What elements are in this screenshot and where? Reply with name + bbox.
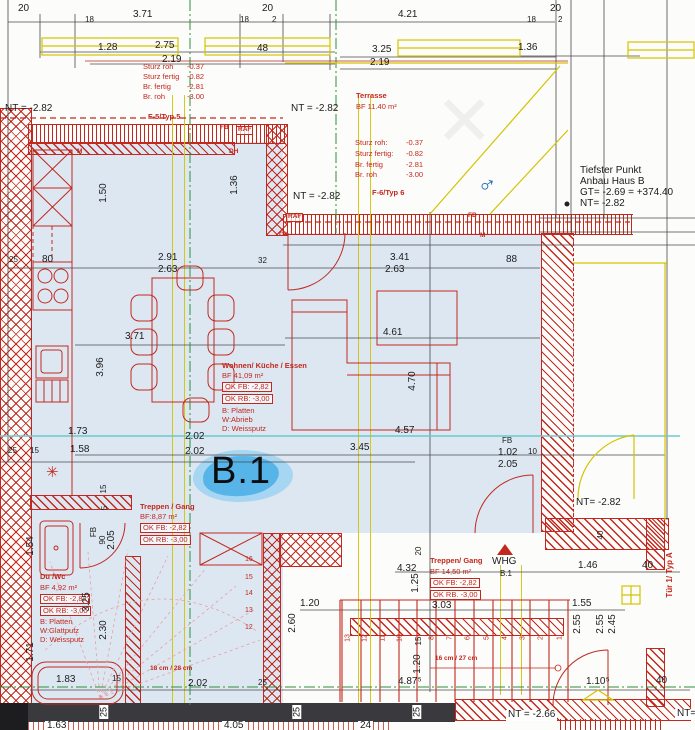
spec1-l1: Sturz roh <box>143 63 173 71</box>
dim-5-v: 5 <box>101 506 109 510</box>
dim-146: 1.46 <box>578 561 597 572</box>
tag-dh: DH <box>229 149 238 156</box>
tag-whg-unit: B.1 <box>500 570 512 578</box>
dim-260-v: 2.60 <box>288 613 299 632</box>
tag-m-2: M <box>77 149 82 156</box>
dim-20-right: 20 <box>550 4 561 15</box>
room-treppen1-okfb: OK FB: -2,82 <box>140 523 190 533</box>
dim-80: 80 <box>42 255 53 266</box>
dim-88: 88 <box>506 255 517 266</box>
room-wohnen-d: D: Weissputz <box>222 425 266 433</box>
unit-marker: B.1 <box>211 452 271 492</box>
dim-263a: 2.63 <box>158 265 177 276</box>
dim-325: 3.25 <box>372 45 391 56</box>
tag-fb-3: FB <box>502 437 512 445</box>
dim-230-v: 2.30 <box>99 620 110 639</box>
spec2-v1: -0.37 <box>406 139 423 147</box>
window-type-6: F-6/Typ 6 <box>372 189 404 197</box>
dim-158: 1.58 <box>70 445 89 456</box>
room-wohnen-b: B: Platten <box>222 407 255 415</box>
step-12: 12 <box>361 634 368 642</box>
stair-note-left: 18 cm / 28 cm <box>150 666 192 673</box>
tag-m-1: M <box>480 233 485 240</box>
dim-255-v2: 2.55 <box>596 614 607 633</box>
dim-219b: 2.19 <box>370 58 389 69</box>
dim-32: 32 <box>258 257 267 265</box>
dim-10: 10 <box>528 448 537 456</box>
step-11: 11 <box>379 634 386 641</box>
window-type-5: F-5/Typ 5 <box>148 113 180 121</box>
room-duwc-area: BF 4,92 m² <box>40 584 77 592</box>
dim-202c: 2.02 <box>188 679 207 690</box>
room-treppen2: Treppen/ Gang <box>430 557 483 565</box>
dim-202a: 2.02 <box>185 432 204 443</box>
dim-18: 18 <box>85 16 94 24</box>
level-nt-1: NT = -2.82 <box>5 104 52 115</box>
room-duwc-d: D: Weissputz <box>40 636 84 644</box>
dim-202b: 2.02 <box>185 447 204 458</box>
door-type-a: Tür 1/ Typ A <box>666 552 674 597</box>
spec1-v1: -0.37 <box>187 63 204 71</box>
note-tiefster-3: GT= -2.69 = +374.40 <box>580 188 673 199</box>
note-tiefster-4: NT= -2.82 <box>580 199 625 210</box>
spec1-l3: Br. fertig <box>143 83 171 91</box>
band-25-1: 25 <box>99 705 108 719</box>
dim-155: 1.55 <box>572 599 591 610</box>
dim-371-top: 3.71 <box>133 10 152 21</box>
tag-fb-1: FB <box>220 125 229 132</box>
room-wohnen-area: BF 41,09 m² <box>222 372 263 380</box>
dim-275: 2.75 <box>155 41 174 52</box>
tag-whg: WHG <box>492 557 516 568</box>
tag-ok: OK <box>279 232 289 239</box>
dim-15b: 15 <box>112 675 121 683</box>
band-25-2: 25 <box>292 705 301 719</box>
dim-345: 3.45 <box>350 443 369 454</box>
level-nt-4: NT= -2.82 <box>576 498 621 509</box>
room-duwc-w: W:Glattputz <box>40 627 79 635</box>
dim-20-topleft: 20 <box>18 4 29 15</box>
level-nt-5: NT = -2.66 <box>506 710 557 721</box>
dim-303: 3.03 <box>432 601 451 612</box>
room-terrasse-area: BF 11.40 m² <box>356 103 397 111</box>
spec2-l2: Sturz fertig: <box>355 150 393 158</box>
dim-470-v: 4.70 <box>408 371 419 390</box>
room-treppen1-okrb: OK RB: -3,00 <box>140 535 191 545</box>
step-15l: 15 <box>245 574 253 581</box>
dim-24-clip: 24 <box>358 721 373 730</box>
dim-325-v: 3.25 <box>82 592 93 611</box>
dim-125-v: 1.25 <box>411 573 422 592</box>
dim-205: 2.05 <box>498 460 517 471</box>
dim-25a: 25 <box>9 256 18 264</box>
step-13l: 13 <box>245 607 253 614</box>
dim-25b: 25 <box>8 447 17 455</box>
level-nt-3: NT = -2.82 <box>293 192 340 203</box>
spec2-v2: -0.82 <box>406 150 423 158</box>
dim-371-mid: 3.71 <box>125 332 144 343</box>
spec2-v4: -3.00 <box>406 171 423 179</box>
room-duwc: Du /Wc <box>40 573 65 581</box>
dim-48: 48 <box>257 44 268 55</box>
dim-405-clip: 4.05 <box>222 721 245 730</box>
dim-25c: 25 <box>258 679 267 687</box>
step-4: 4 <box>501 636 508 640</box>
room-terrasse: Terrasse <box>356 92 387 100</box>
mark-asterisk: ✳ <box>46 465 59 481</box>
step-5: 5 <box>483 636 490 640</box>
dim-396-v: 3.96 <box>96 357 107 376</box>
dim-15-v2: 15 <box>415 637 423 646</box>
dim-291: 2.91 <box>158 253 177 264</box>
dim-263b: 2.63 <box>385 265 404 276</box>
step-6: 6 <box>464 636 471 640</box>
tag-raf-2: RAF <box>286 213 303 222</box>
spec2-l3: Br. fertig <box>355 161 383 169</box>
dim-15a: 15 <box>30 447 39 455</box>
dim-120a: 1.20 <box>300 599 319 610</box>
note-tiefster-1: Tiefster Punkt <box>580 166 641 177</box>
dim-40a: 40 <box>656 676 667 687</box>
room-wohnen-w: W:Abrieb <box>222 416 253 424</box>
stair-note-right: 16 cm / 27 cm <box>435 656 477 663</box>
dim-163-clip: 1.63 <box>45 721 68 730</box>
step-1: 1 <box>556 636 563 640</box>
dim-20-v: 20 <box>415 547 423 556</box>
dim-457: 4.57 <box>395 426 414 437</box>
dim-4875: 4.87⁵ <box>398 677 422 688</box>
room-treppen1: Treppen / Gang <box>140 503 195 511</box>
level-nt-6: NT= <box>675 709 695 720</box>
dim-173: 1.73 <box>68 427 87 438</box>
dim-341: 3.41 <box>390 253 409 264</box>
step-7: 7 <box>446 636 453 640</box>
room-wohnen-okrb: OK RB: -3,00 <box>222 394 273 404</box>
dim-18c: 18 <box>527 16 536 24</box>
dim-2b: 2 <box>558 16 562 24</box>
spec1-l4: Br. roh <box>143 93 165 101</box>
tag-raf-1: RAF <box>236 126 253 135</box>
dim-421: 4.21 <box>398 10 417 21</box>
watermark-x: ✕ <box>435 85 494 159</box>
dim-2a: 2 <box>272 16 276 24</box>
dim-150-v: 1.50 <box>99 183 110 202</box>
dim-20-mid: 20 <box>262 4 273 15</box>
dim-154-v: 1.54 <box>26 536 37 555</box>
dim-171-v: 1.71 <box>26 642 37 661</box>
dim-40-v: 40 <box>597 531 605 540</box>
band-25-3: 25 <box>412 705 421 719</box>
spec2-l1: Sturz roh: <box>355 139 388 147</box>
step-16l: 16 <box>245 556 253 563</box>
tag-fb-2: FB <box>468 213 477 220</box>
dim-128: 1.28 <box>98 43 117 54</box>
mark-male-symbol: ♂ <box>476 170 499 198</box>
dim-136-v: 1.36 <box>230 175 241 194</box>
room-duwc-b: B: Platten <box>40 618 73 626</box>
dim-18b: 18 <box>240 16 249 24</box>
spec1-v4: -3.00 <box>187 93 204 101</box>
dim-461: 4.61 <box>383 328 402 339</box>
room-treppen2-area: BF 14,50 m² <box>430 568 471 576</box>
step-8: 8 <box>428 636 435 640</box>
step-14l: 14 <box>245 590 253 597</box>
dim-1105: 1.10⁵ <box>586 677 610 688</box>
room-treppen2-okfb: OK FB: -2,82 <box>430 578 480 588</box>
dim-205-v: 2.05 <box>107 530 118 549</box>
step-10: 10 <box>396 634 403 642</box>
spec1-v2: -0.82 <box>187 73 204 81</box>
room-treppen2-okrb: OK RB. -3,00 <box>430 590 481 600</box>
step-3: 3 <box>519 636 526 640</box>
room-wohnen: Wohnen/ Küche / Essen <box>222 362 307 370</box>
spec1-v3: -2.81 <box>187 83 204 91</box>
room-treppen1-area: BF:8,87 m² <box>140 513 177 521</box>
annotations-layer: 20183.71201824.21201821.282.752.19483.25… <box>0 0 695 730</box>
spec2-v3: -2.81 <box>406 161 423 169</box>
step-2: 2 <box>537 636 544 640</box>
step-12l: 12 <box>245 624 253 631</box>
spec1-l2: Sturz fertig <box>143 73 179 81</box>
floor-plan-canvas: 20183.71201824.21201821.282.752.19483.25… <box>0 0 695 730</box>
room-wohnen-okfb: OK FB: -2,82 <box>222 382 272 392</box>
step-13: 13 <box>344 634 351 642</box>
dim-136: 1.36 <box>518 43 537 54</box>
level-nt-2: NT = -2.82 <box>291 104 338 115</box>
dim-15-v1: 15 <box>100 485 108 494</box>
dim-183: 1.83 <box>56 675 75 686</box>
dim-40b: 40 <box>642 561 653 572</box>
spec2-l4: Br. roh <box>355 171 377 179</box>
dim-120-v: 1.20 <box>413 654 424 673</box>
dim-102: 1.02 <box>498 448 517 459</box>
dim-245-v: 2.45 <box>608 614 619 633</box>
dim-255-v1: 2.55 <box>573 614 584 633</box>
note-tiefster-2: Anbau Haus B <box>580 177 645 188</box>
